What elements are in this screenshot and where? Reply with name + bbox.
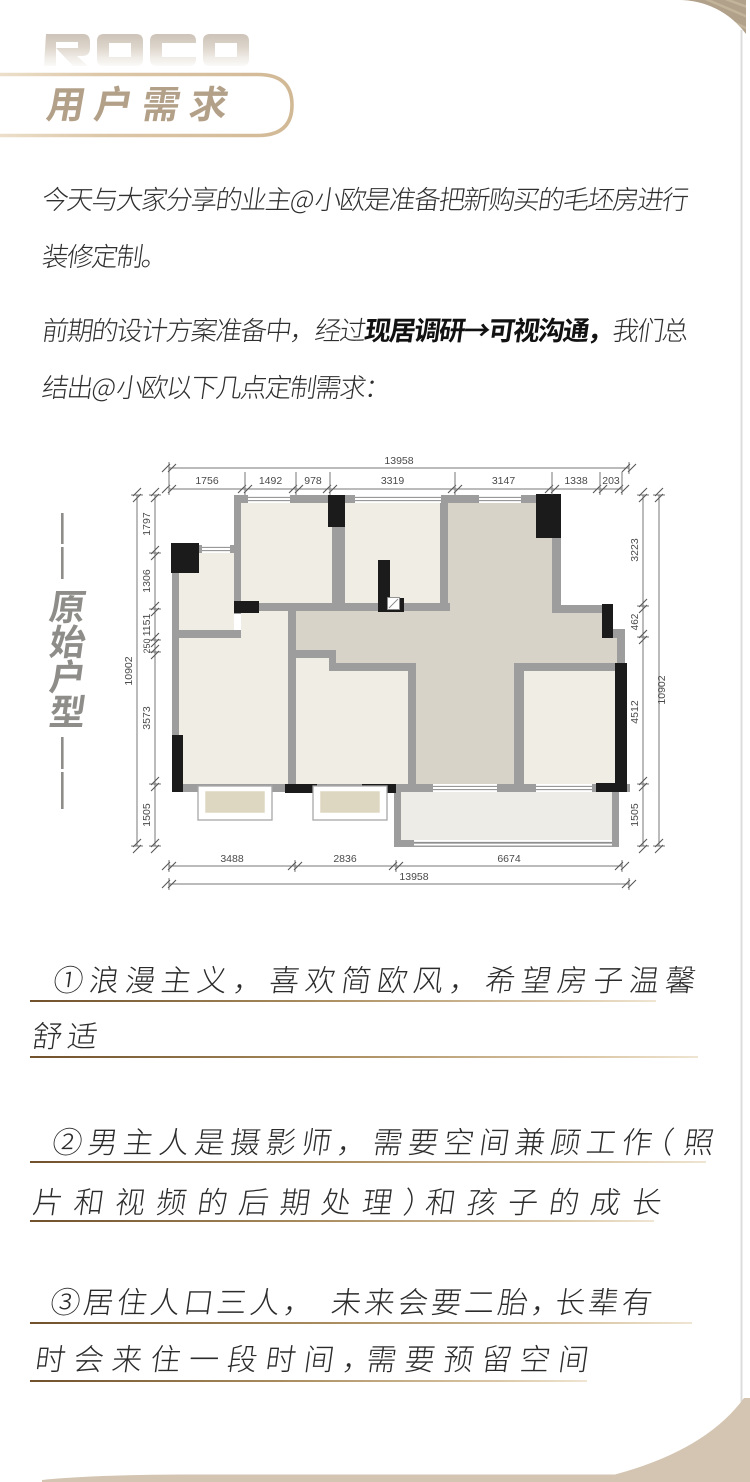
- svg-text:1505: 1505: [629, 803, 641, 827]
- svg-text:1756: 1756: [195, 475, 219, 487]
- svg-text:1338: 1338: [564, 475, 588, 487]
- svg-text:3488: 3488: [220, 853, 244, 865]
- svg-text:4512: 4512: [629, 700, 641, 724]
- svg-text:10902: 10902: [656, 675, 668, 704]
- svg-text:3223: 3223: [629, 538, 641, 562]
- svg-text:3319: 3319: [381, 475, 405, 487]
- svg-text:13958: 13958: [399, 871, 428, 883]
- svg-text:2836: 2836: [333, 853, 357, 865]
- svg-text:1492: 1492: [259, 475, 283, 487]
- svg-text:1151: 1151: [141, 614, 153, 637]
- svg-text:6674: 6674: [497, 853, 521, 865]
- svg-text:462: 462: [630, 613, 641, 630]
- svg-text:1306: 1306: [141, 569, 153, 593]
- svg-text:1797: 1797: [141, 512, 153, 536]
- svg-text:13958: 13958: [384, 455, 413, 467]
- svg-text:250: 250: [142, 638, 152, 653]
- svg-text:978: 978: [304, 475, 322, 487]
- svg-text:1505: 1505: [141, 803, 153, 827]
- svg-text:3147: 3147: [492, 475, 516, 487]
- svg-text:10902: 10902: [123, 656, 135, 685]
- svg-text:203: 203: [602, 475, 620, 487]
- svg-text:3573: 3573: [141, 706, 153, 730]
